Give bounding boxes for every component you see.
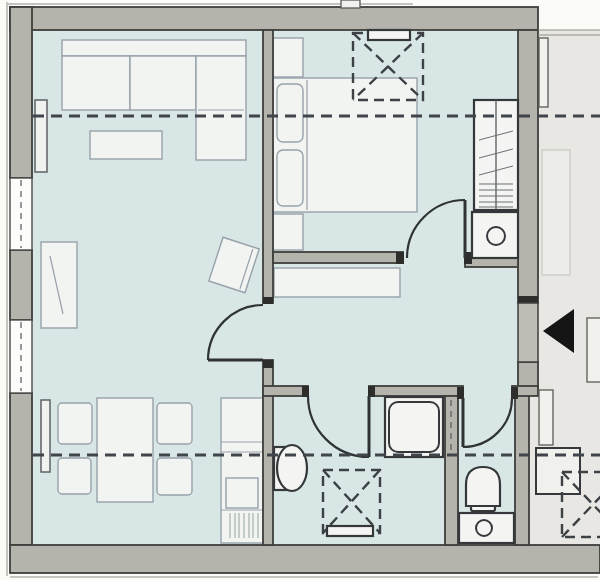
dining-table — [97, 398, 153, 502]
jamb-bath-door-right — [368, 386, 375, 397]
jamb-wc-door-right — [511, 387, 518, 399]
pillow-1 — [277, 84, 303, 142]
neighbor-entry-door — [539, 390, 553, 445]
bedroom-vanity-cabinet — [472, 212, 518, 258]
jamb-hall-door-bottom — [263, 360, 273, 368]
dining-chair-2 — [157, 403, 192, 444]
bath-basin-bowl — [277, 445, 307, 491]
wc-sink-cabinet — [459, 513, 514, 543]
kitchenette — [221, 398, 263, 543]
bedroom-bottom-wall-left — [273, 252, 403, 263]
jamb-bath-door-left — [302, 386, 309, 397]
pillow-2 — [277, 150, 303, 206]
sofa-chaise — [196, 56, 246, 160]
jamb-hall-door-top — [263, 297, 273, 304]
left-wall-upper — [10, 7, 32, 178]
neighbor-window — [539, 38, 548, 107]
wc-right-wall — [515, 388, 529, 545]
bath-wc-divider-wall — [445, 396, 458, 545]
kitchenette-appliance — [226, 478, 258, 508]
jamb-bedroom-door-left — [396, 252, 404, 264]
dining-chair-4 — [157, 458, 192, 495]
sofa-back — [62, 40, 246, 56]
sofa-seat-left — [62, 56, 130, 110]
entrance-door-slab — [518, 303, 538, 362]
skylight-bedroom-sill — [368, 30, 410, 40]
bath-top-wall-left — [263, 386, 308, 396]
left-wall-mid — [10, 250, 32, 320]
neighbor-wardrobe — [542, 150, 570, 275]
dining-chair-1 — [58, 403, 92, 444]
shower-tray — [385, 397, 443, 457]
jamb-wc-door-left — [457, 387, 464, 399]
living-partition-upper — [263, 30, 273, 303]
right-wall — [518, 30, 538, 303]
top-wall — [10, 7, 538, 30]
skylight-bath-sill — [327, 526, 373, 536]
dining-chair-3 — [58, 458, 91, 494]
nightstand-upper — [273, 38, 303, 77]
sofa-seat-mid — [130, 56, 196, 110]
hall-sideboard — [274, 268, 400, 297]
floor-plan-canvas — [0, 0, 600, 580]
chimney — [341, 0, 360, 8]
radiator-lower — [41, 400, 50, 472]
entry-corner-wall — [518, 362, 538, 388]
radiator-upper — [35, 100, 47, 172]
side-table — [41, 242, 77, 328]
nightstand-lower — [273, 214, 303, 250]
left-wall-lower — [10, 393, 32, 545]
neighbor-door-upper — [587, 318, 600, 382]
bath-top-wall-mid — [369, 386, 463, 396]
coffee-table — [90, 131, 162, 159]
floor-plan-svg — [0, 0, 600, 580]
bottom-wall — [10, 545, 600, 573]
toilet-bowl — [466, 467, 500, 506]
